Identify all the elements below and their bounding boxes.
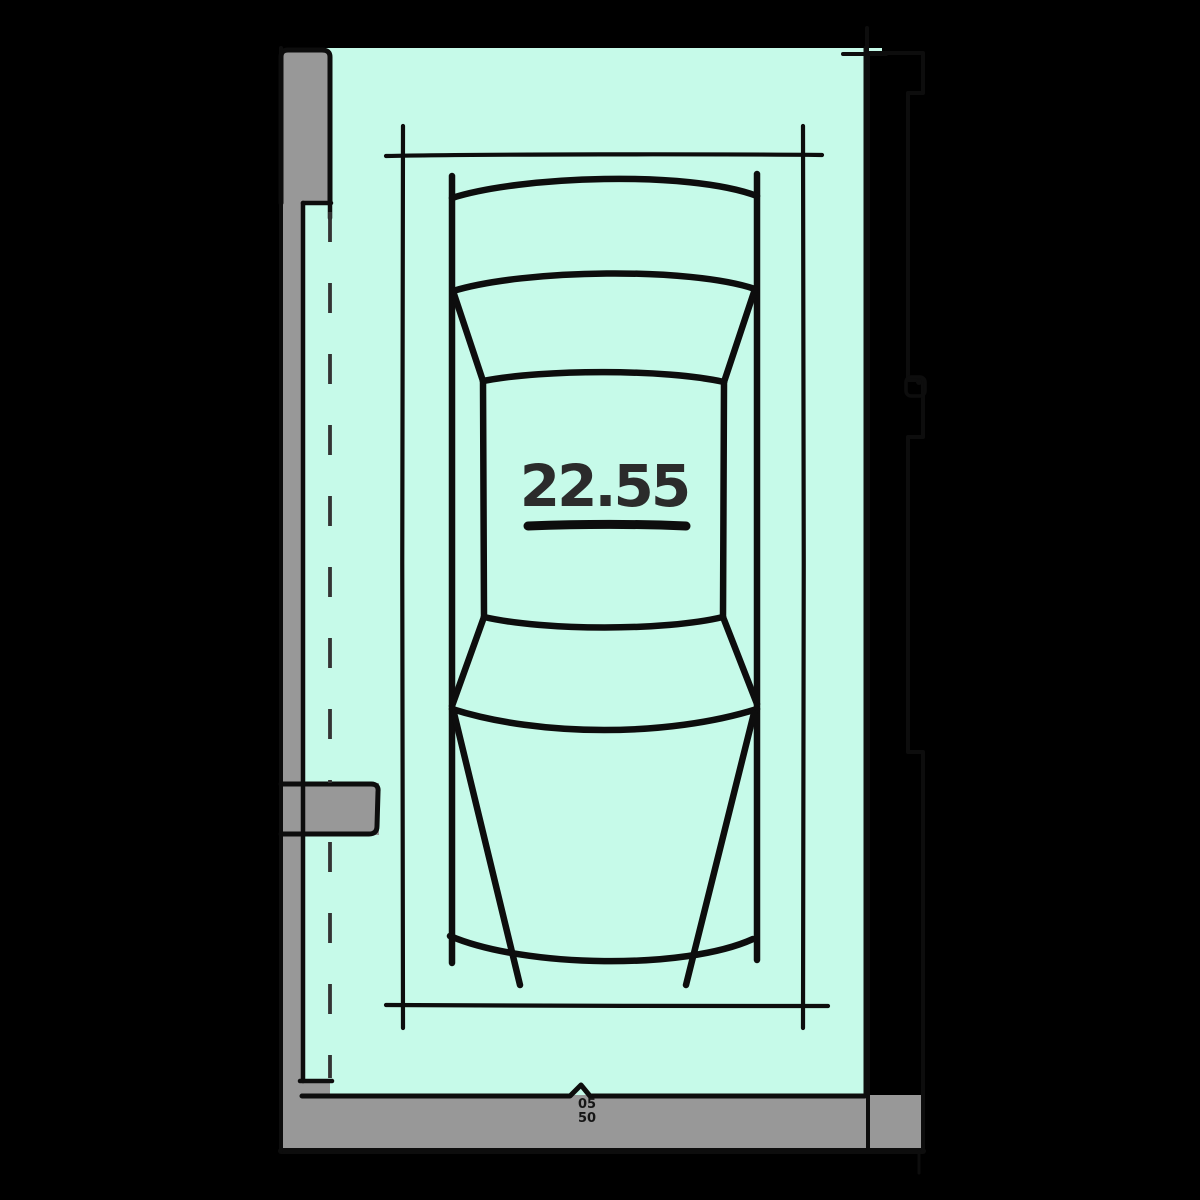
- dimension-line-right: [803, 126, 804, 1028]
- fixture-dot: [916, 379, 922, 385]
- dimension-line-top: [386, 154, 822, 156]
- dimension-note-line2: 50: [578, 1112, 596, 1126]
- wall-right: [868, 53, 923, 1150]
- dimension-note: 05 50: [578, 1098, 596, 1126]
- wall-left-bottom-block: [281, 1081, 330, 1151]
- floor-plan-canvas: 22.55 05 50: [0, 0, 1200, 1200]
- dimension-note-line1: 05: [578, 1098, 596, 1112]
- wall-bottom: [281, 1095, 923, 1150]
- area-underline: [528, 525, 686, 527]
- dimension-line-bottom: [386, 1005, 828, 1006]
- wall-pilaster: [281, 783, 379, 835]
- wall-left-column: [281, 50, 330, 203]
- car-roof-left: [483, 381, 484, 617]
- parking-space-fill: [302, 48, 865, 1095]
- dimension-line-left: [402, 126, 403, 1028]
- floor-plan-drawing: [0, 0, 1200, 1200]
- parking-space-area: [302, 48, 882, 1095]
- wall-left: [281, 203, 303, 1081]
- area-label: 22.55: [520, 452, 688, 520]
- car-roof-right: [723, 382, 724, 617]
